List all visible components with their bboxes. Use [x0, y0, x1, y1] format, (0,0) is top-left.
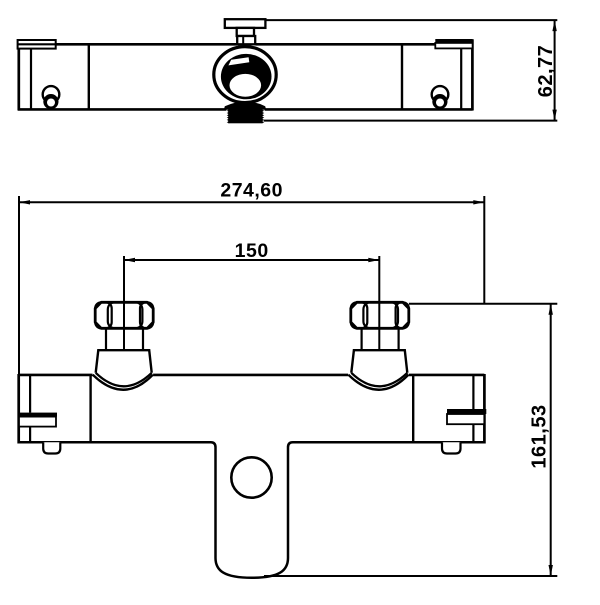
svg-text:274,60: 274,60: [220, 180, 283, 202]
svg-text:62,77: 62,77: [535, 45, 557, 98]
svg-text:161,53: 161,53: [529, 404, 551, 468]
svg-text:150: 150: [235, 240, 269, 262]
